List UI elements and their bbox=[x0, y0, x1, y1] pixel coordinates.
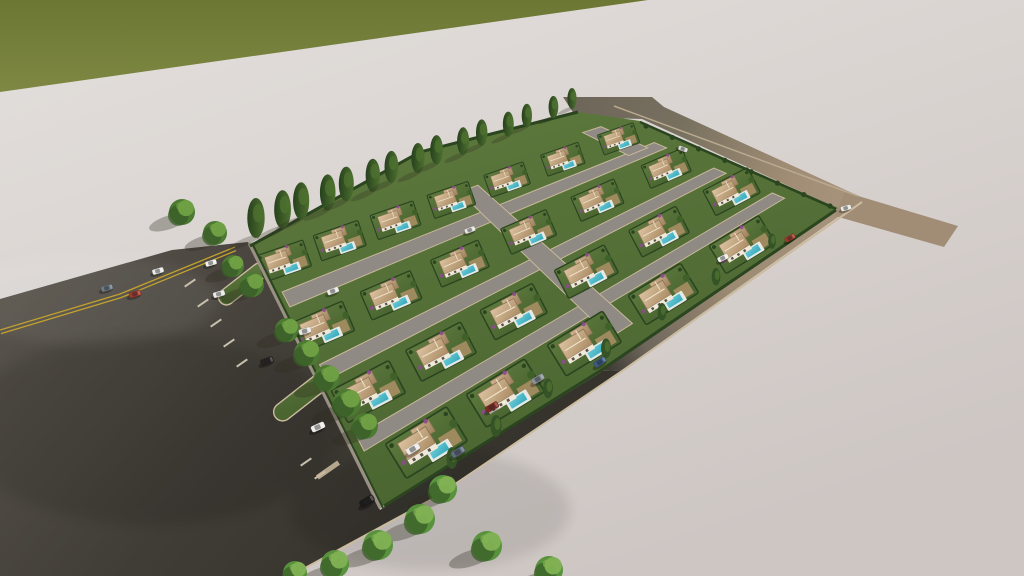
tree-foliage-light bbox=[329, 554, 337, 562]
cypress-highlight bbox=[344, 172, 353, 188]
tree-foliage-light bbox=[247, 276, 254, 283]
tree-foliage-light bbox=[359, 416, 367, 424]
ne-shrub bbox=[643, 123, 648, 128]
cypress-highlight bbox=[370, 164, 378, 179]
ne-shrub bbox=[801, 192, 806, 197]
cypress-highlight bbox=[253, 204, 263, 222]
tree-foliage-light bbox=[543, 560, 551, 568]
ne-shrub bbox=[670, 135, 675, 140]
ne-shrub bbox=[722, 158, 727, 163]
cypress-highlight bbox=[525, 107, 531, 118]
wall-tree-highlight bbox=[771, 236, 775, 244]
cypress-highlight bbox=[570, 91, 575, 101]
tree-foliage-light bbox=[228, 258, 235, 265]
tree-foliage-light bbox=[480, 535, 489, 544]
tree-foliage-light bbox=[176, 202, 184, 210]
wall-tree-highlight bbox=[661, 305, 666, 315]
wall-tree bbox=[712, 268, 721, 286]
cypress-highlight bbox=[280, 196, 290, 214]
tree-foliage-light bbox=[371, 534, 380, 543]
tree-foliage-light bbox=[321, 368, 329, 376]
tree-foliage-light bbox=[282, 321, 289, 328]
wall-tree-highlight bbox=[605, 341, 610, 352]
cypress-highlight bbox=[389, 156, 397, 170]
cypress-highlight bbox=[416, 148, 424, 162]
ne-shrub bbox=[749, 169, 754, 174]
wall-tree-highlight bbox=[495, 418, 501, 430]
cypress-highlight bbox=[434, 140, 441, 153]
tree-foliage-light bbox=[437, 479, 445, 487]
wall-tree-highlight bbox=[547, 381, 552, 392]
cypress-highlight bbox=[461, 132, 468, 145]
tree-foliage-light bbox=[301, 343, 309, 351]
tree-foliage-light bbox=[341, 393, 349, 401]
ne-shrub bbox=[827, 203, 832, 208]
ne-shrub bbox=[696, 146, 701, 151]
cypress-highlight bbox=[298, 188, 307, 205]
ne-shrub bbox=[775, 181, 780, 186]
cypress-highlight bbox=[480, 123, 487, 135]
render-canvas bbox=[0, 0, 1024, 576]
cypress-highlight bbox=[506, 115, 512, 126]
wall-tree bbox=[543, 379, 553, 399]
wall-tree bbox=[601, 339, 611, 359]
tree-foliage-light bbox=[413, 508, 422, 517]
wall-tree-highlight bbox=[715, 270, 720, 280]
wall-tree bbox=[658, 303, 667, 321]
tree-foliage-light bbox=[290, 564, 297, 571]
cypress-highlight bbox=[552, 99, 558, 109]
wall-tree bbox=[768, 234, 776, 249]
aerial-render-viewport bbox=[0, 0, 1024, 576]
cypress-highlight bbox=[325, 180, 334, 196]
wall-tree bbox=[491, 415, 502, 437]
tree-foliage-light bbox=[210, 224, 217, 231]
